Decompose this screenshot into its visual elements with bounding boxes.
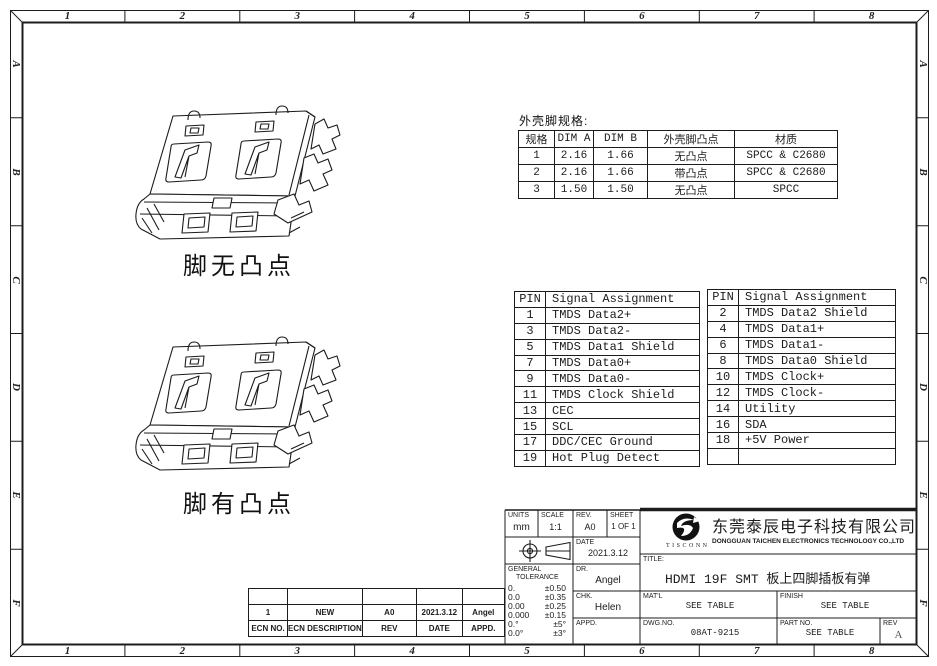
- zone-col-bottom-4: 4: [409, 645, 415, 657]
- header-cell: ECN DESCRIPTION: [288, 621, 363, 637]
- dr-label: DR.: [576, 566, 588, 573]
- zone-row-left-E: E: [10, 492, 22, 499]
- data-cell: 带凸点: [648, 165, 735, 182]
- table-row: 6TMDS Data1-: [708, 337, 896, 353]
- data-cell: 1: [515, 307, 546, 323]
- data-cell: TMDS Data1-: [739, 337, 896, 353]
- data-cell: 1: [519, 148, 555, 165]
- table-row: 7TMDS Data0+: [515, 355, 700, 371]
- header-cell: Signal Assignment: [739, 290, 896, 306]
- rev-label: REV.: [576, 512, 592, 519]
- data-cell: 2021.3.12: [416, 605, 462, 621]
- zone-row-left-C: C: [10, 276, 22, 283]
- data-cell: [462, 589, 504, 605]
- matl-value: SEE TABLE: [655, 601, 765, 611]
- table-row: 12.161.66无凸点SPCC & C2680: [519, 148, 838, 165]
- units-value: mm: [505, 522, 538, 533]
- appd-label: APPD.: [576, 620, 597, 627]
- table-header-row: 规格DIM ADIM B外壳脚凸点材质: [519, 131, 838, 148]
- data-cell: [249, 589, 288, 605]
- shell-spec-title: 外壳脚规格:: [519, 112, 588, 129]
- table-row: [708, 448, 896, 464]
- table-row: [249, 589, 505, 605]
- header-cell: ECN NO.: [249, 621, 288, 637]
- table-row: 3TMDS Data2-: [515, 323, 700, 339]
- data-cell: 17: [515, 435, 546, 451]
- table-row: 16SDA: [708, 417, 896, 433]
- zone-col-top-1: 1: [65, 10, 71, 22]
- data-cell: 8: [708, 353, 739, 369]
- table-row: 1NEWA02021.3.12Angel: [249, 605, 505, 621]
- rev-value: A0: [573, 522, 607, 532]
- table-row: 5TMDS Data1 Shield: [515, 339, 700, 355]
- header-cell: 规格: [519, 131, 555, 148]
- zone-row-right-E: E: [917, 492, 929, 499]
- zone-row-right-B: B: [917, 168, 929, 175]
- company-name-en: DONGGUAN TAICHEN ELECTRONICS TECHNOLOGY …: [712, 538, 904, 545]
- table-row: 19Hot Plug Detect: [515, 450, 700, 466]
- data-cell: 2: [519, 165, 555, 182]
- table-row: 4TMDS Data1+: [708, 321, 896, 337]
- logo-wordmark: TISCONN: [666, 543, 710, 549]
- projection-symbol: [519, 540, 570, 562]
- tolerance-list: 0.±0.500.0±0.350.00±0.250.000±0.150.°±5°…: [508, 584, 566, 638]
- chk-label: CHK.: [576, 593, 593, 600]
- table-row: 9TMDS Data0-: [515, 371, 700, 387]
- pin-table-even: PINSignal Assignment2TMDS Data2 Shield4T…: [707, 289, 896, 465]
- data-cell: TMDS Clock Shield: [546, 387, 700, 403]
- data-cell: TMDS Clock-: [739, 385, 896, 401]
- data-cell: 2: [708, 305, 739, 321]
- data-cell: 13: [515, 403, 546, 419]
- header-cell: REV: [362, 621, 416, 637]
- data-cell: TMDS Data1+: [739, 321, 896, 337]
- table-row: 13CEC: [515, 403, 700, 419]
- table-row: 12TMDS Clock-: [708, 385, 896, 401]
- data-cell: TMDS Data2 Shield: [739, 305, 896, 321]
- data-cell: TMDS Data0+: [546, 355, 700, 371]
- sheet-value: 1 OF 1: [606, 522, 641, 531]
- data-cell: 1.66: [594, 148, 648, 165]
- data-cell: TMDS Data0 Shield: [739, 353, 896, 369]
- data-cell: SPCC & C2680: [735, 148, 838, 165]
- drawing-title: HDMI 19F SMT 板上四脚插板有弹: [665, 568, 870, 587]
- partno-value: SEE TABLE: [785, 628, 875, 638]
- table-row: 14Utility: [708, 401, 896, 417]
- drawing-sheet: 1122334455667788AABBCCDDEEFF: [0, 0, 937, 666]
- sheet-label: SHEET: [610, 512, 633, 519]
- data-cell: [288, 589, 363, 605]
- zone-col-top-3: 3: [294, 10, 300, 22]
- data-cell: SPCC: [735, 182, 838, 199]
- data-cell: 3: [519, 182, 555, 199]
- ecn-revision-table: 1NEWA02021.3.12AngelECN NO.ECN DESCRIPTI…: [248, 588, 505, 637]
- tolerance-row: 0.0°±3°: [508, 629, 566, 638]
- table-row: 10TMDS Clock+: [708, 369, 896, 385]
- data-cell: [416, 589, 462, 605]
- zone-row-left-D: D: [10, 383, 22, 391]
- table-row: 31.501.50无凸点SPCC: [519, 182, 838, 199]
- dr-value: Angel: [578, 575, 638, 586]
- tolerance-label-2: TOLERANCE: [516, 574, 559, 581]
- view-label-no-bump: 脚无凸点: [183, 246, 295, 281]
- zone-col-bottom-1: 1: [65, 645, 71, 657]
- title-label: TITLE:: [643, 556, 664, 563]
- header-cell: DATE: [416, 621, 462, 637]
- data-cell: 6: [708, 337, 739, 353]
- data-cell: TMDS Data2+: [546, 307, 700, 323]
- data-cell: 1: [249, 605, 288, 621]
- zone-col-bottom-8: 8: [869, 645, 875, 657]
- data-cell: TMDS Data0-: [546, 371, 700, 387]
- data-cell: Angel: [462, 605, 504, 621]
- header-cell: PIN: [708, 290, 739, 306]
- company-name-cn: 东莞泰辰电子科技有限公司: [712, 513, 916, 537]
- data-cell: 11: [515, 387, 546, 403]
- tolerance-value: ±3°: [553, 629, 566, 638]
- finish-value: SEE TABLE: [790, 601, 900, 611]
- data-cell: 19: [515, 450, 546, 466]
- rev2-label: REV: [883, 620, 897, 627]
- table-row: 22.161.66带凸点SPCC & C2680: [519, 165, 838, 182]
- header-cell: Signal Assignment: [546, 292, 700, 308]
- zone-row-right-C: C: [917, 276, 929, 283]
- zone-col-bottom-3: 3: [294, 645, 300, 657]
- zone-col-top-8: 8: [869, 10, 875, 22]
- scale-value: 1:1: [538, 522, 573, 532]
- date-label: DATE: [576, 539, 594, 546]
- table-row: 11TMDS Clock Shield: [515, 387, 700, 403]
- data-cell: 14: [708, 401, 739, 417]
- header-cell: APPD.: [462, 621, 504, 637]
- table-row: 2TMDS Data2 Shield: [708, 305, 896, 321]
- zone-row-left-F: F: [10, 599, 22, 606]
- tolerance-dim: 0.0°: [508, 629, 523, 638]
- data-cell: 16: [708, 417, 739, 433]
- matl-label: MAT'L: [643, 593, 663, 600]
- data-cell: CEC: [546, 403, 700, 419]
- data-cell: 12: [708, 385, 739, 401]
- dwgno-label: DWG.NO.: [643, 620, 675, 627]
- dwgno-value: 08AT-9215: [665, 628, 765, 638]
- zone-row-right-F: F: [917, 599, 929, 606]
- data-cell: SPCC & C2680: [735, 165, 838, 182]
- zone-col-bottom-6: 6: [639, 645, 645, 657]
- zone-row-right-A: A: [917, 60, 929, 67]
- data-cell: TMDS Data1 Shield: [546, 339, 700, 355]
- zone-row-left-B: B: [10, 168, 22, 175]
- data-cell: 9: [515, 371, 546, 387]
- data-cell: 1.50: [555, 182, 594, 199]
- table-row: 17DDC/CEC Ground: [515, 435, 700, 451]
- zone-col-top-2: 2: [180, 10, 186, 22]
- header-cell: PIN: [515, 292, 546, 308]
- table-row: 18+5V Power: [708, 433, 896, 449]
- table-row: 15SCL: [515, 419, 700, 435]
- zone-col-bottom-7: 7: [754, 645, 760, 657]
- data-cell: 18: [708, 433, 739, 449]
- data-cell: 3: [515, 323, 546, 339]
- connector-iso-view-with-bump: [128, 333, 360, 478]
- finish-label: FINISH: [780, 593, 803, 600]
- zone-col-bottom-5: 5: [524, 645, 530, 657]
- data-cell: Hot Plug Detect: [546, 450, 700, 466]
- data-cell: TMDS Data2-: [546, 323, 700, 339]
- data-cell: 10: [708, 369, 739, 385]
- table-header-row: PINSignal Assignment: [708, 290, 896, 306]
- rev2-value: A: [880, 629, 917, 641]
- data-cell: +5V Power: [739, 433, 896, 449]
- units-label: UNITS: [508, 512, 529, 519]
- zone-col-top-7: 7: [754, 10, 760, 22]
- data-cell: 7: [515, 355, 546, 371]
- zone-col-top-4: 4: [409, 10, 415, 22]
- scale-label: SCALE: [541, 512, 564, 519]
- zone-col-top-5: 5: [524, 10, 530, 22]
- connector-iso-view-no-bump: [128, 102, 360, 247]
- header-cell: DIM A: [555, 131, 594, 148]
- table-row: 1TMDS Data2+: [515, 307, 700, 323]
- data-cell: NEW: [288, 605, 363, 621]
- data-cell: SCL: [546, 419, 700, 435]
- table-row: 8TMDS Data0 Shield: [708, 353, 896, 369]
- data-cell: A0: [362, 605, 416, 621]
- zone-row-right-D: D: [917, 383, 929, 391]
- data-cell: [708, 448, 739, 464]
- data-cell: 2.16: [555, 148, 594, 165]
- header-cell: DIM B: [594, 131, 648, 148]
- date-value: 2021.3.12: [578, 548, 638, 558]
- data-cell: TMDS Clock+: [739, 369, 896, 385]
- data-cell: 无凸点: [648, 148, 735, 165]
- data-cell: 4: [708, 321, 739, 337]
- data-cell: SDA: [739, 417, 896, 433]
- chk-value: Helen: [578, 602, 638, 613]
- data-cell: 15: [515, 419, 546, 435]
- data-cell: 1.50: [594, 182, 648, 199]
- partno-label: PART NO.: [780, 620, 812, 627]
- data-cell: 1.66: [594, 165, 648, 182]
- data-cell: 无凸点: [648, 182, 735, 199]
- data-cell: [362, 589, 416, 605]
- data-cell: DDC/CEC Ground: [546, 435, 700, 451]
- data-cell: Utility: [739, 401, 896, 417]
- table-header-row: PINSignal Assignment: [515, 292, 700, 308]
- data-cell: 2.16: [555, 165, 594, 182]
- header-cell: 材质: [735, 131, 838, 148]
- shell-spec-table: 规格DIM ADIM B外壳脚凸点材质12.161.66无凸点SPCC & C2…: [518, 130, 838, 199]
- header-cell: 外壳脚凸点: [648, 131, 735, 148]
- zone-row-left-A: A: [10, 60, 22, 67]
- zone-col-top-6: 6: [639, 10, 645, 22]
- table-header-row: ECN NO.ECN DESCRIPTIONREVDATEAPPD.: [249, 621, 505, 637]
- tolerance-label-1: GENERAL: [508, 566, 541, 573]
- data-cell: [739, 448, 896, 464]
- data-cell: 5: [515, 339, 546, 355]
- zone-col-bottom-2: 2: [180, 645, 186, 657]
- view-label-with-bump: 脚有凸点: [183, 484, 295, 519]
- pin-table-odd: PINSignal Assignment1TMDS Data2+3TMDS Da…: [514, 291, 700, 467]
